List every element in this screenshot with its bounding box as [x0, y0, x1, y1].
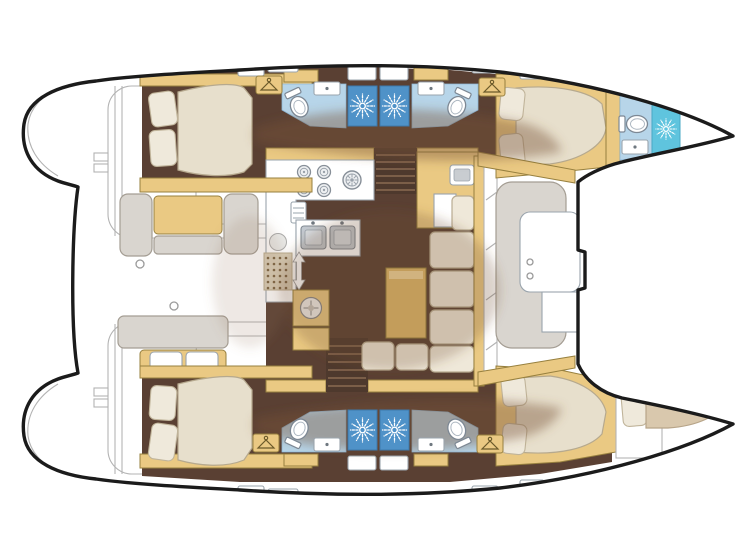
- seat-cutout: [520, 212, 580, 292]
- sink-drain: [325, 87, 328, 90]
- pillow: [148, 422, 179, 461]
- pillow: [148, 90, 178, 127]
- sink-drain: [429, 87, 432, 90]
- seat-cutout-lower: [542, 292, 580, 332]
- sink-drain: [633, 145, 636, 148]
- vanity: [284, 454, 318, 466]
- catamaran-floor-plan: [0, 0, 747, 560]
- double-bed: [178, 377, 252, 466]
- salon-wall-bottom: [266, 380, 326, 392]
- pillow: [149, 385, 177, 421]
- wardrobe-hanger-icon: [253, 434, 279, 452]
- deck-hatch: [348, 456, 376, 470]
- cockpit-cushion-port: [154, 196, 222, 234]
- cockpit-bolster-left: [120, 194, 152, 256]
- sink-drain: [325, 443, 328, 446]
- double-bed: [178, 85, 252, 176]
- round-burner: [343, 171, 361, 189]
- floor-plan-canvas: [0, 0, 747, 560]
- pillow: [149, 129, 177, 167]
- wardrobe-hanger-icon: [256, 76, 282, 94]
- sink-drain: [429, 443, 432, 446]
- pillow: [620, 387, 647, 427]
- toilet-icon: [619, 116, 648, 133]
- vanity: [414, 454, 448, 466]
- wardrobe-hanger-icon: [477, 435, 503, 453]
- salon-wall-bottom-right: [368, 380, 478, 392]
- wardrobe-hanger-icon: [479, 78, 505, 96]
- deck-hatch: [380, 456, 408, 470]
- cockpit-shelf: [154, 236, 222, 254]
- cockpit-bench-starboard: [118, 316, 228, 348]
- vanity: [414, 68, 448, 80]
